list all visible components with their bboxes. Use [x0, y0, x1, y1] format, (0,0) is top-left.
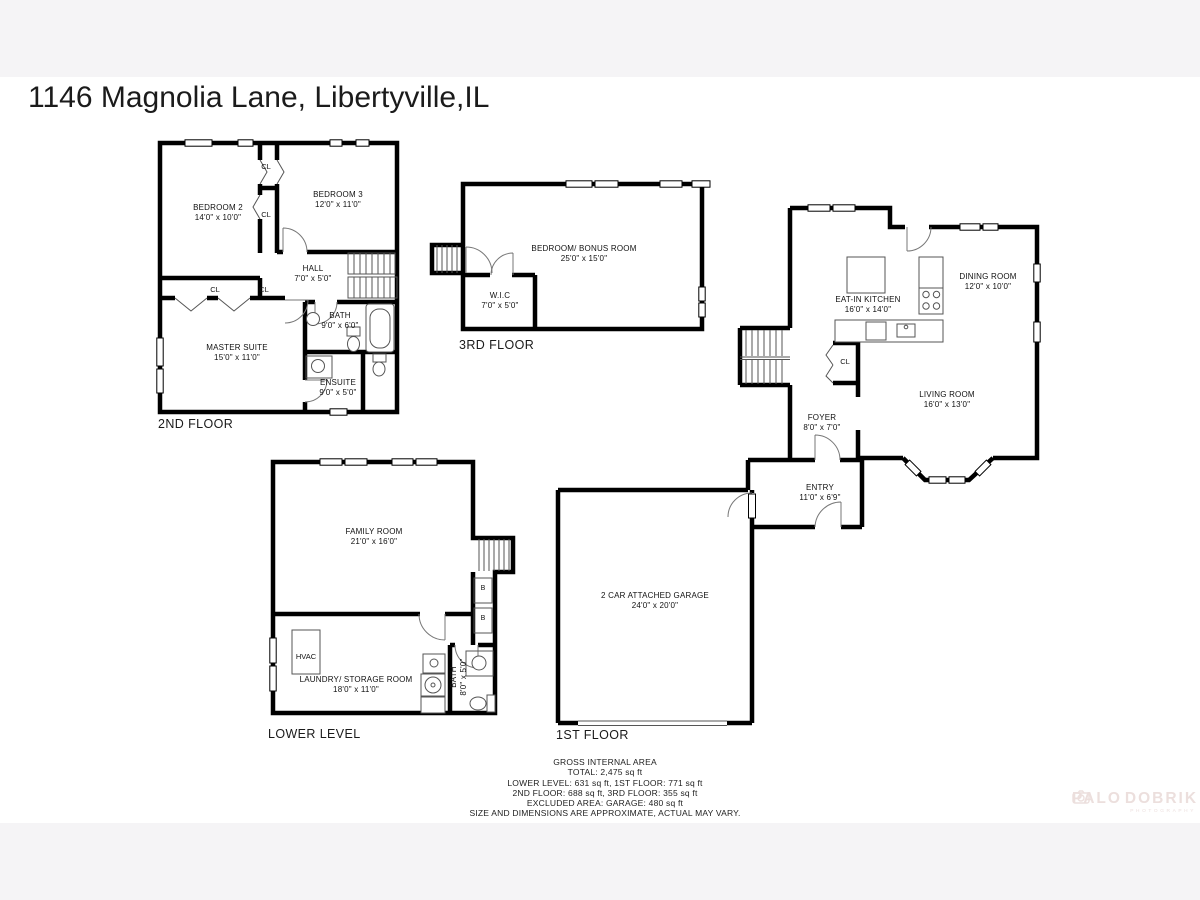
laundry-appliance-icons [421, 654, 445, 713]
room-name: BEDROOM 2 [193, 203, 243, 213]
room-name: BEDROOM/ BONUS ROOM [531, 244, 636, 254]
room-dims: 12'0" x 10'0" [965, 282, 1011, 292]
room-name: LAUNDRY/ STORAGE ROOM [300, 675, 413, 685]
room-label-family-room: FAMILY ROOM 21'0" x 16'0" [345, 527, 402, 547]
room-label-entry: ENTRY 11'0" x 6'9" [799, 483, 840, 503]
floor-title-lower: LOWER LEVEL [268, 727, 361, 741]
garage-door-leaf [749, 494, 756, 518]
ensuite-toilet-icon [373, 354, 386, 376]
room-label-bath-lower: BATH 8'0" x 5'0" [449, 658, 469, 695]
room-name: BATH [449, 666, 459, 688]
room-dims: 16'0" x 13'0" [924, 400, 970, 410]
room-label-hall: HALL 7'0" x 5'0" [294, 264, 331, 284]
floor-title-3rd: 3RD FLOOR [459, 338, 534, 352]
room-label-bath2: BATH 9'0" x 6'0" [321, 311, 358, 331]
room-label-foyer: FOYER 8'0" x 7'0" [803, 413, 840, 433]
bifold-closet-door [175, 298, 207, 311]
sink-icon [307, 313, 320, 326]
closet-door-zigzag [826, 345, 833, 365]
floor-title-2nd: 2ND FLOOR [158, 417, 233, 431]
staircase-icon [348, 253, 397, 298]
area-summary: GROSS INTERNAL AREA TOTAL: 2,475 sq ft L… [305, 757, 905, 819]
room-dims: 9'0" x 6'0" [321, 321, 358, 331]
bedroom3-door-arc [283, 228, 307, 252]
room-label-kitchen: EAT-IN KITCHEN 16'0" x 14'0" [835, 295, 900, 315]
room-label-bedroom2: BEDROOM 2 14'0" x 10'0" [193, 203, 243, 223]
area-summary-line: TOTAL: 2,475 sq ft [305, 767, 905, 777]
stair-door-arc [466, 247, 492, 273]
closet-label: CL [840, 357, 850, 366]
builtin-label: B [481, 585, 486, 592]
ensuite-sink-icon [306, 356, 332, 378]
room-dims: 24'0" x 20'0" [632, 601, 678, 611]
room-dims: 7'0" x 5'0" [294, 274, 331, 284]
room-dims: 21'0" x 16'0" [351, 537, 397, 547]
area-summary-line: GROSS INTERNAL AREA [305, 757, 905, 767]
closet-door-zigzag [826, 365, 833, 383]
area-summary-line: SIZE AND DIMENSIONS ARE APPROXIMATE, ACT… [305, 808, 905, 818]
staircase-icon [437, 245, 457, 273]
room-name: W.I.C [490, 291, 511, 301]
room-name: LIVING ROOM [919, 390, 975, 400]
closet-door-zigzag [277, 160, 284, 184]
room-dims: 25'0" x 15'0" [561, 254, 607, 264]
laundry-door-arc [419, 614, 445, 640]
room-name: FAMILY ROOM [345, 527, 402, 537]
room-name: BATH [329, 311, 351, 321]
closet-door-zigzag [253, 195, 260, 219]
room-label-living: LIVING ROOM 16'0" x 13'0" [919, 390, 975, 410]
room-label-master-suite: MASTER SUITE 15'0" x 11'0" [206, 343, 268, 363]
foyer-door-arc [815, 435, 840, 460]
room-label-ensuite: ENSUITE 9'0" x 5'0" [319, 378, 356, 398]
area-summary-line: EXCLUDED AREA: GARAGE: 480 sq ft [305, 798, 905, 808]
watermark-text-right: DOBRIK [1125, 790, 1198, 808]
room-label-laundry: LAUNDRY/ STORAGE ROOM 18'0" x 11'0" [300, 675, 413, 695]
bifold-closet-door [218, 298, 250, 311]
wic-door-arc [491, 253, 513, 275]
staircase-icon [740, 330, 790, 384]
bath-fixture-icons [466, 651, 495, 712]
area-summary-line: 2ND FLOOR: 688 sq ft, 3RD FLOOR: 355 sq … [305, 788, 905, 798]
room-name: BEDROOM 3 [313, 190, 363, 200]
photographer-watermark: PALO DOBRIK PHOTOGRAPHY [1072, 790, 1198, 814]
room-dims: 14'0" x 10'0" [195, 213, 241, 223]
bathtub-icon [366, 304, 394, 352]
room-label-dining: DINING ROOM 12'0" x 10'0" [959, 272, 1016, 292]
room-dims: 9'0" x 5'0" [319, 388, 356, 398]
camera-icon [1072, 790, 1090, 804]
builtin-label: B [481, 615, 486, 622]
front-door-arc [815, 502, 841, 527]
room-dims: 16'0" x 14'0" [845, 305, 891, 315]
kitchen-island-icon [847, 257, 885, 293]
room-dims: 12'0" x 11'0" [315, 200, 361, 210]
closet-label: CL [210, 285, 220, 294]
room-label-wic: W.I.C 7'0" x 5'0" [481, 291, 518, 311]
floorplan-page: 1146 Magnolia Lane, Libertyville,IL [0, 0, 1200, 900]
room-name: DINING ROOM [959, 272, 1016, 282]
floor-title-1st: 1ST FLOOR [556, 728, 629, 742]
room-name: HALL [303, 264, 324, 274]
room-name: ENTRY [806, 483, 834, 493]
room-dims: 15'0" x 11'0" [214, 353, 260, 363]
closet-label: CL [259, 285, 269, 294]
room-label-bedroom3: BEDROOM 3 12'0" x 11'0" [313, 190, 363, 210]
room-dims: 7'0" x 5'0" [481, 301, 518, 311]
room-name: 2 CAR ATTACHED GARAGE [601, 591, 709, 601]
kitchen-dining-door-arc [907, 227, 931, 251]
closet-label: CL [261, 210, 271, 219]
watermark-subtitle: PHOTOGRAPHY [1072, 809, 1198, 814]
room-name: EAT-IN KITCHEN [835, 295, 900, 305]
room-dims: 18'0" x 11'0" [333, 685, 379, 695]
room-label-garage: 2 CAR ATTACHED GARAGE 24'0" x 20'0" [601, 591, 709, 611]
closet-label: CL [261, 162, 271, 171]
area-summary-line: LOWER LEVEL: 631 sq ft, 1ST FLOOR: 771 s… [305, 778, 905, 788]
second-floor-plan [157, 140, 397, 415]
garage-door-icon [578, 718, 727, 728]
staircase-icon [479, 539, 509, 571]
room-name: ENSUITE [320, 378, 356, 388]
room-dims: 8'0" x 7'0" [803, 423, 840, 433]
room-name: MASTER SUITE [206, 343, 268, 353]
room-dims: 11'0" x 6'9" [799, 493, 840, 503]
hvac-label: HVAC [296, 652, 316, 661]
room-label-bonus-room: BEDROOM/ BONUS ROOM 25'0" x 15'0" [531, 244, 636, 264]
room-dims: 8'0" x 5'0" [459, 658, 469, 695]
room-name: FOYER [808, 413, 837, 423]
